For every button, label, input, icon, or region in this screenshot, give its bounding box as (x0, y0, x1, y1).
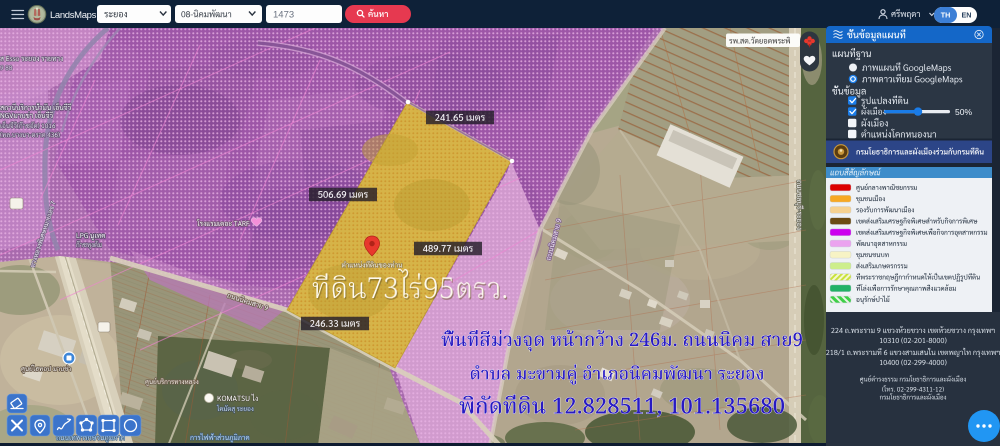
svg-text:EN: EN (962, 11, 972, 20)
svg-text:TH: TH (941, 11, 951, 20)
svg-text:50%: 50% (955, 107, 972, 117)
svg-text:LandsMaps: LandsMaps (50, 10, 97, 21)
svg-text:1473: 1473 (273, 10, 294, 21)
